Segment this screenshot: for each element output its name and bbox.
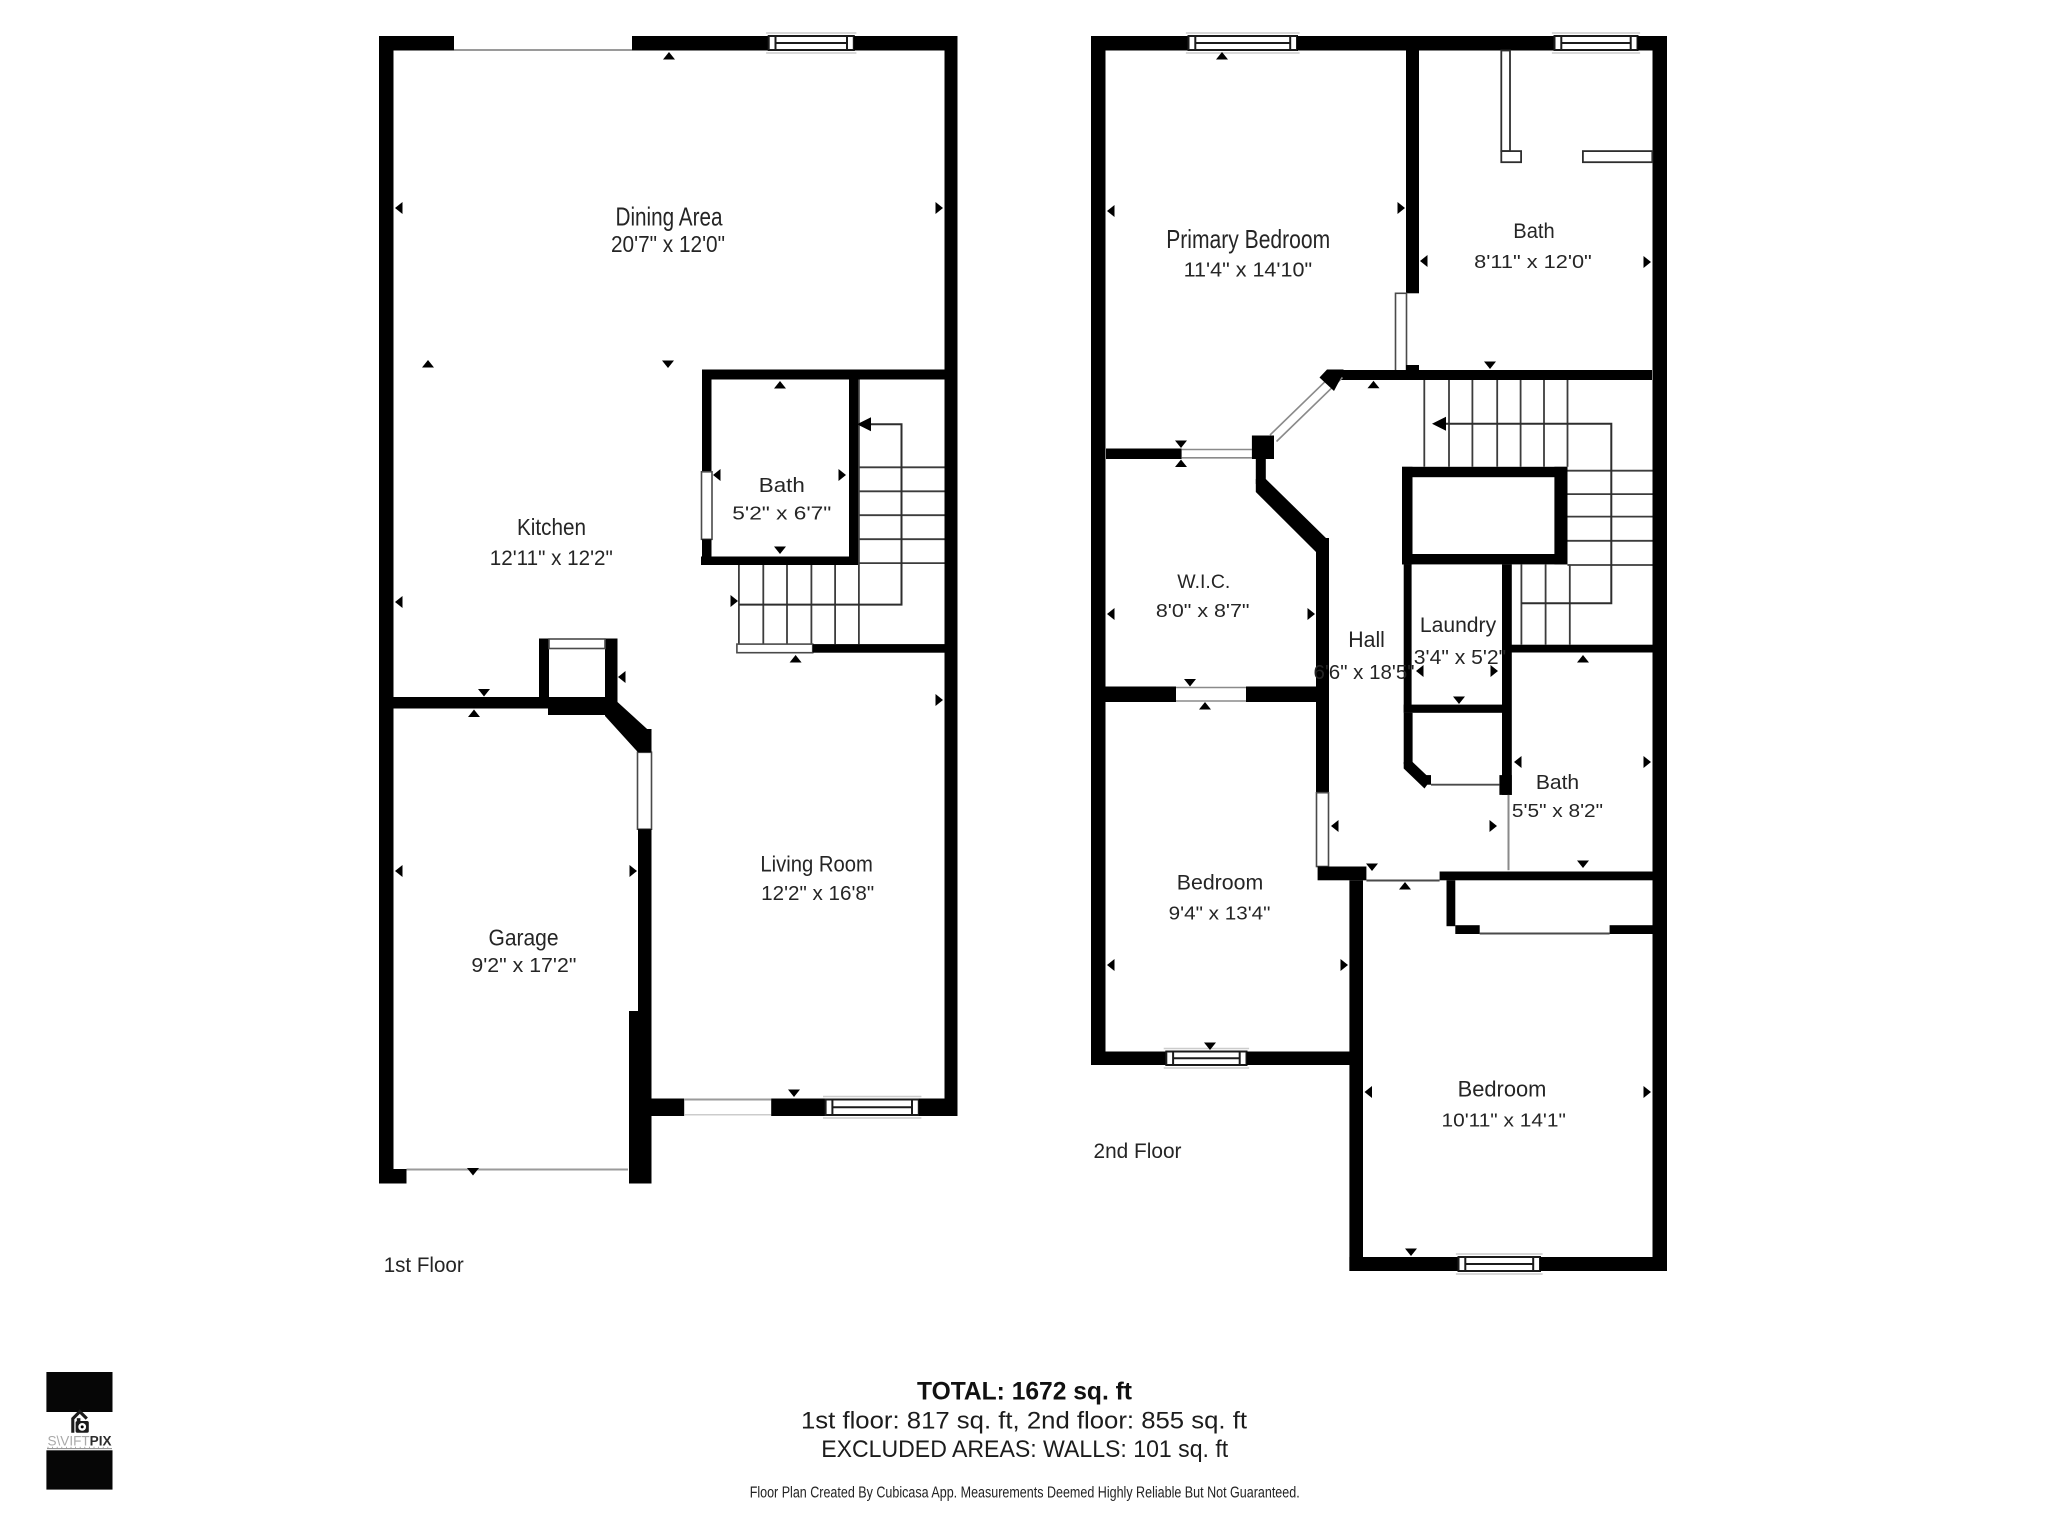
svg-text:12'11" x 12'2": 12'11" x 12'2": [490, 547, 613, 570]
svg-text:5'2" x 6'7": 5'2" x 6'7": [732, 503, 831, 524]
svg-text:2nd Floor: 2nd Floor: [1094, 1140, 1182, 1163]
svg-text:1st Floor: 1st Floor: [384, 1254, 464, 1277]
svg-text:Bedroom: Bedroom: [1177, 872, 1264, 895]
svg-text:Kitchen: Kitchen: [517, 514, 586, 540]
svg-text:W.I.C.: W.I.C.: [1177, 571, 1230, 593]
svg-text:Bedroom: Bedroom: [1458, 1077, 1547, 1102]
svg-text:Garage: Garage: [489, 924, 559, 950]
svg-text:12'2" x 16'8": 12'2" x 16'8": [761, 882, 874, 905]
svg-text:10'11" x 14'1": 10'11" x 14'1": [1442, 1110, 1566, 1131]
svg-text:Floor Plan Created By Cubicasa: Floor Plan Created By Cubicasa App. Meas…: [750, 1485, 1300, 1502]
svg-text:TOTAL: 1672 sq. ft: TOTAL: 1672 sq. ft: [917, 1378, 1133, 1406]
svg-text:11'4" x 14'10": 11'4" x 14'10": [1184, 259, 1312, 282]
svg-text:Dining Area: Dining Area: [616, 202, 723, 232]
svg-text:S\VIFTPIX: S\VIFTPIX: [48, 1434, 112, 1449]
svg-text:9'4" x 13'4": 9'4" x 13'4": [1169, 904, 1271, 924]
svg-text:9'2" x 17'2": 9'2" x 17'2": [471, 954, 576, 977]
svg-text:EXCLUDED AREAS: WALLS: 101 sq.: EXCLUDED AREAS: WALLS: 101 sq. ft: [821, 1436, 1228, 1463]
svg-text:Laundry: Laundry: [1420, 613, 1497, 637]
svg-text:5'5" x 8'2": 5'5" x 8'2": [1512, 800, 1603, 821]
svg-text:Bath: Bath: [759, 475, 805, 497]
svg-text:3'4" x 5'2": 3'4" x 5'2": [1414, 647, 1506, 669]
svg-text:Hall: Hall: [1348, 627, 1385, 652]
svg-text:1st floor: 817 sq. ft, 2nd flo: 1st floor: 817 sq. ft, 2nd floor: 855 sq…: [801, 1408, 1247, 1435]
svg-text:20'7" x 12'0": 20'7" x 12'0": [611, 231, 725, 257]
svg-text:8'11" x 12'0": 8'11" x 12'0": [1474, 252, 1592, 272]
svg-text:Bath: Bath: [1536, 772, 1579, 794]
svg-text:8'0" x 8'7": 8'0" x 8'7": [1156, 601, 1250, 621]
svg-text:Primary Bedroom: Primary Bedroom: [1166, 224, 1330, 254]
svg-text:6'6" x 18'5": 6'6" x 18'5": [1314, 661, 1415, 684]
svg-text:Bath: Bath: [1513, 220, 1554, 243]
svg-text:Living Room: Living Room: [760, 852, 873, 877]
